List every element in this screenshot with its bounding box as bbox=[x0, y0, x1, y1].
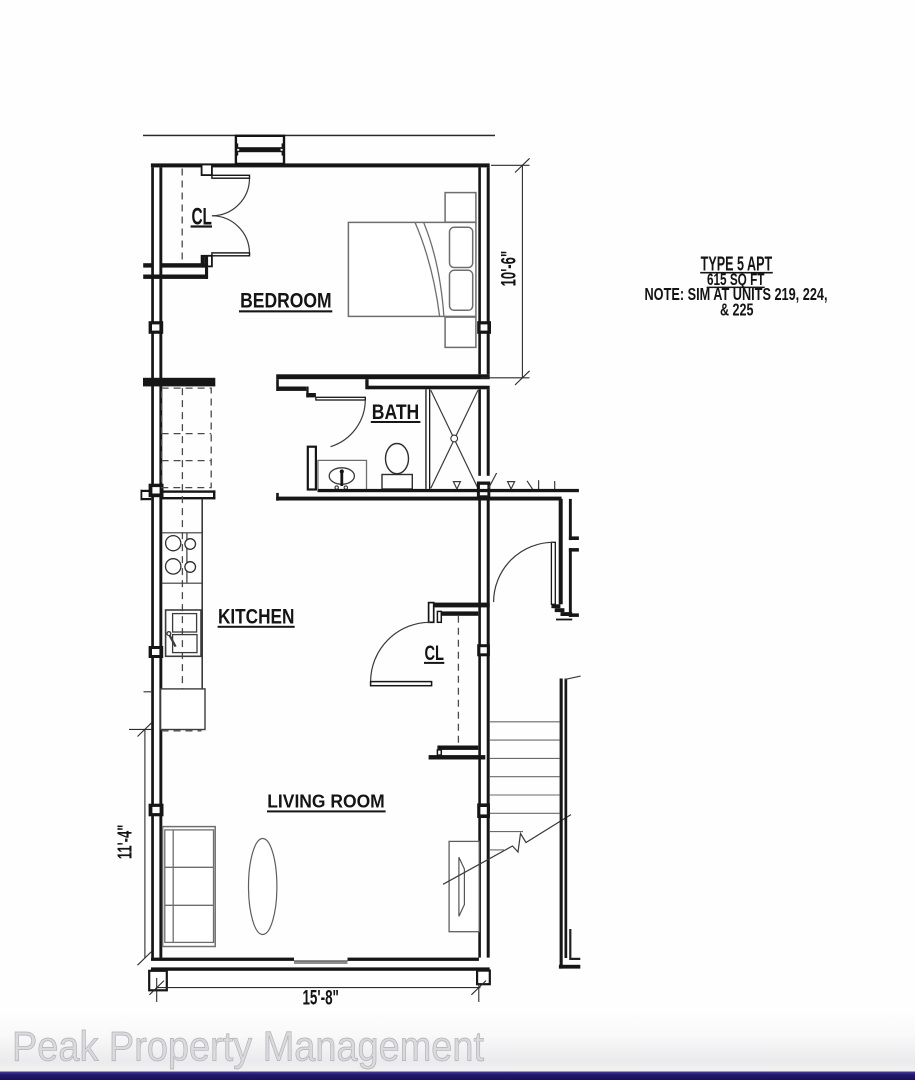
svg-text:LIVING ROOM: LIVING ROOM bbox=[267, 791, 385, 812]
svg-text:Peak Property Management: Peak Property Management bbox=[12, 1023, 484, 1070]
svg-text:BEDROOM: BEDROOM bbox=[240, 289, 332, 313]
svg-text:KITCHEN: KITCHEN bbox=[218, 604, 295, 628]
svg-text:& 225: & 225 bbox=[720, 299, 754, 319]
svg-text:11'-4": 11'-4" bbox=[115, 825, 137, 860]
svg-text:10'-6": 10'-6" bbox=[497, 251, 521, 287]
svg-text:CL: CL bbox=[424, 641, 444, 665]
svg-text:BATH: BATH bbox=[372, 400, 420, 424]
